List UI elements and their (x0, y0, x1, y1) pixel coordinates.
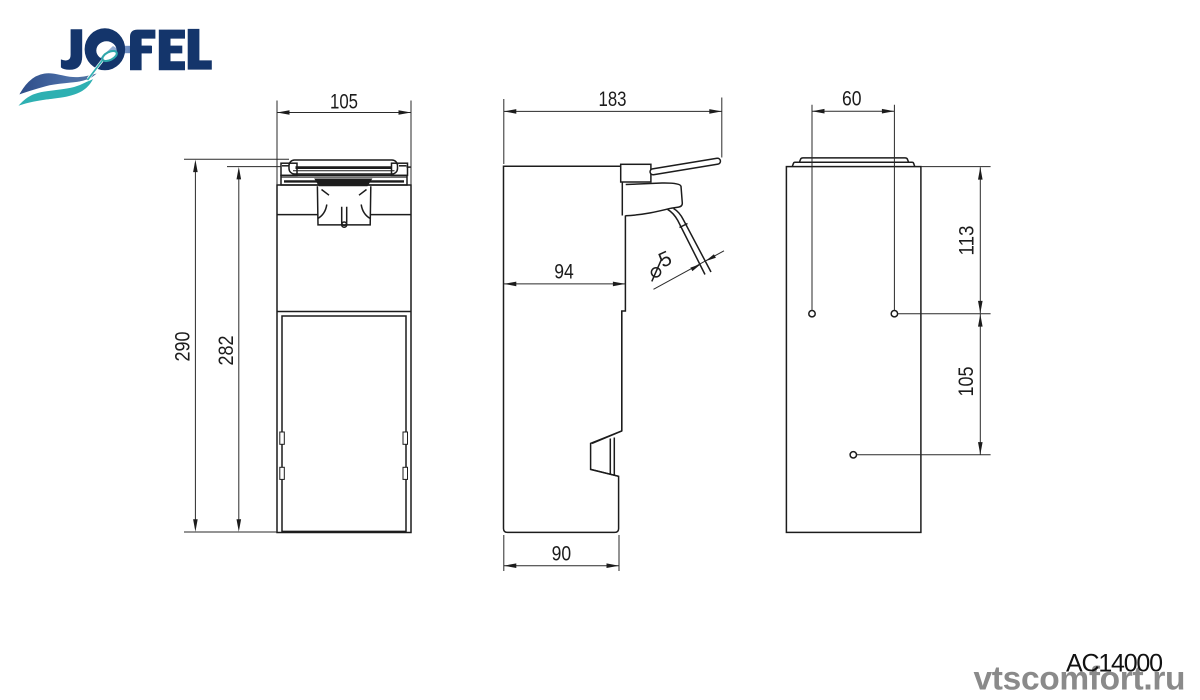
svg-text:90: 90 (552, 543, 572, 566)
svg-text:60: 60 (842, 88, 862, 111)
svg-text:282: 282 (215, 336, 238, 366)
svg-text:113: 113 (956, 226, 979, 256)
svg-text:183: 183 (599, 88, 627, 111)
svg-text:290: 290 (172, 332, 195, 362)
svg-text:94: 94 (554, 261, 574, 284)
svg-text:AC14000: AC14000 (1066, 650, 1163, 678)
svg-text:105: 105 (330, 91, 358, 114)
svg-text:105: 105 (955, 367, 978, 397)
